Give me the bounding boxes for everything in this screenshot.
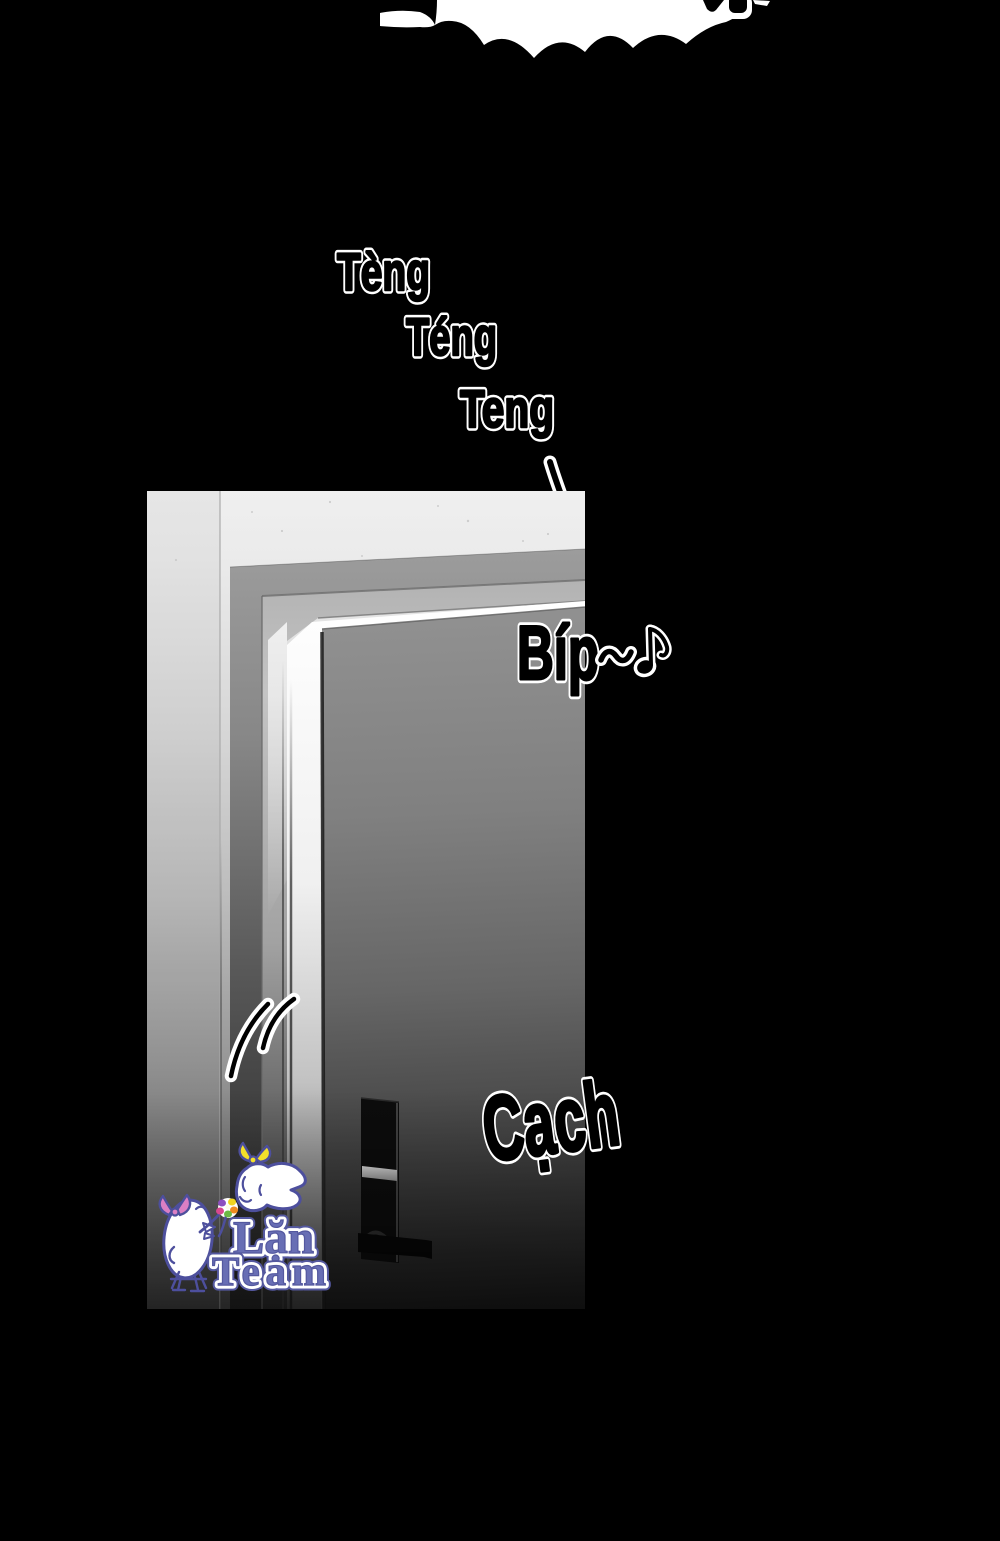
svg-text:Cạch: Cạch bbox=[477, 1062, 625, 1181]
svg-text:Teng: Teng bbox=[460, 380, 554, 439]
svg-text:Téng: Téng bbox=[406, 308, 497, 367]
svg-text:Tèng: Tèng bbox=[337, 243, 430, 302]
svg-text:Bíp: Bíp bbox=[517, 611, 599, 696]
svg-text:Team: Team bbox=[212, 1248, 326, 1294]
